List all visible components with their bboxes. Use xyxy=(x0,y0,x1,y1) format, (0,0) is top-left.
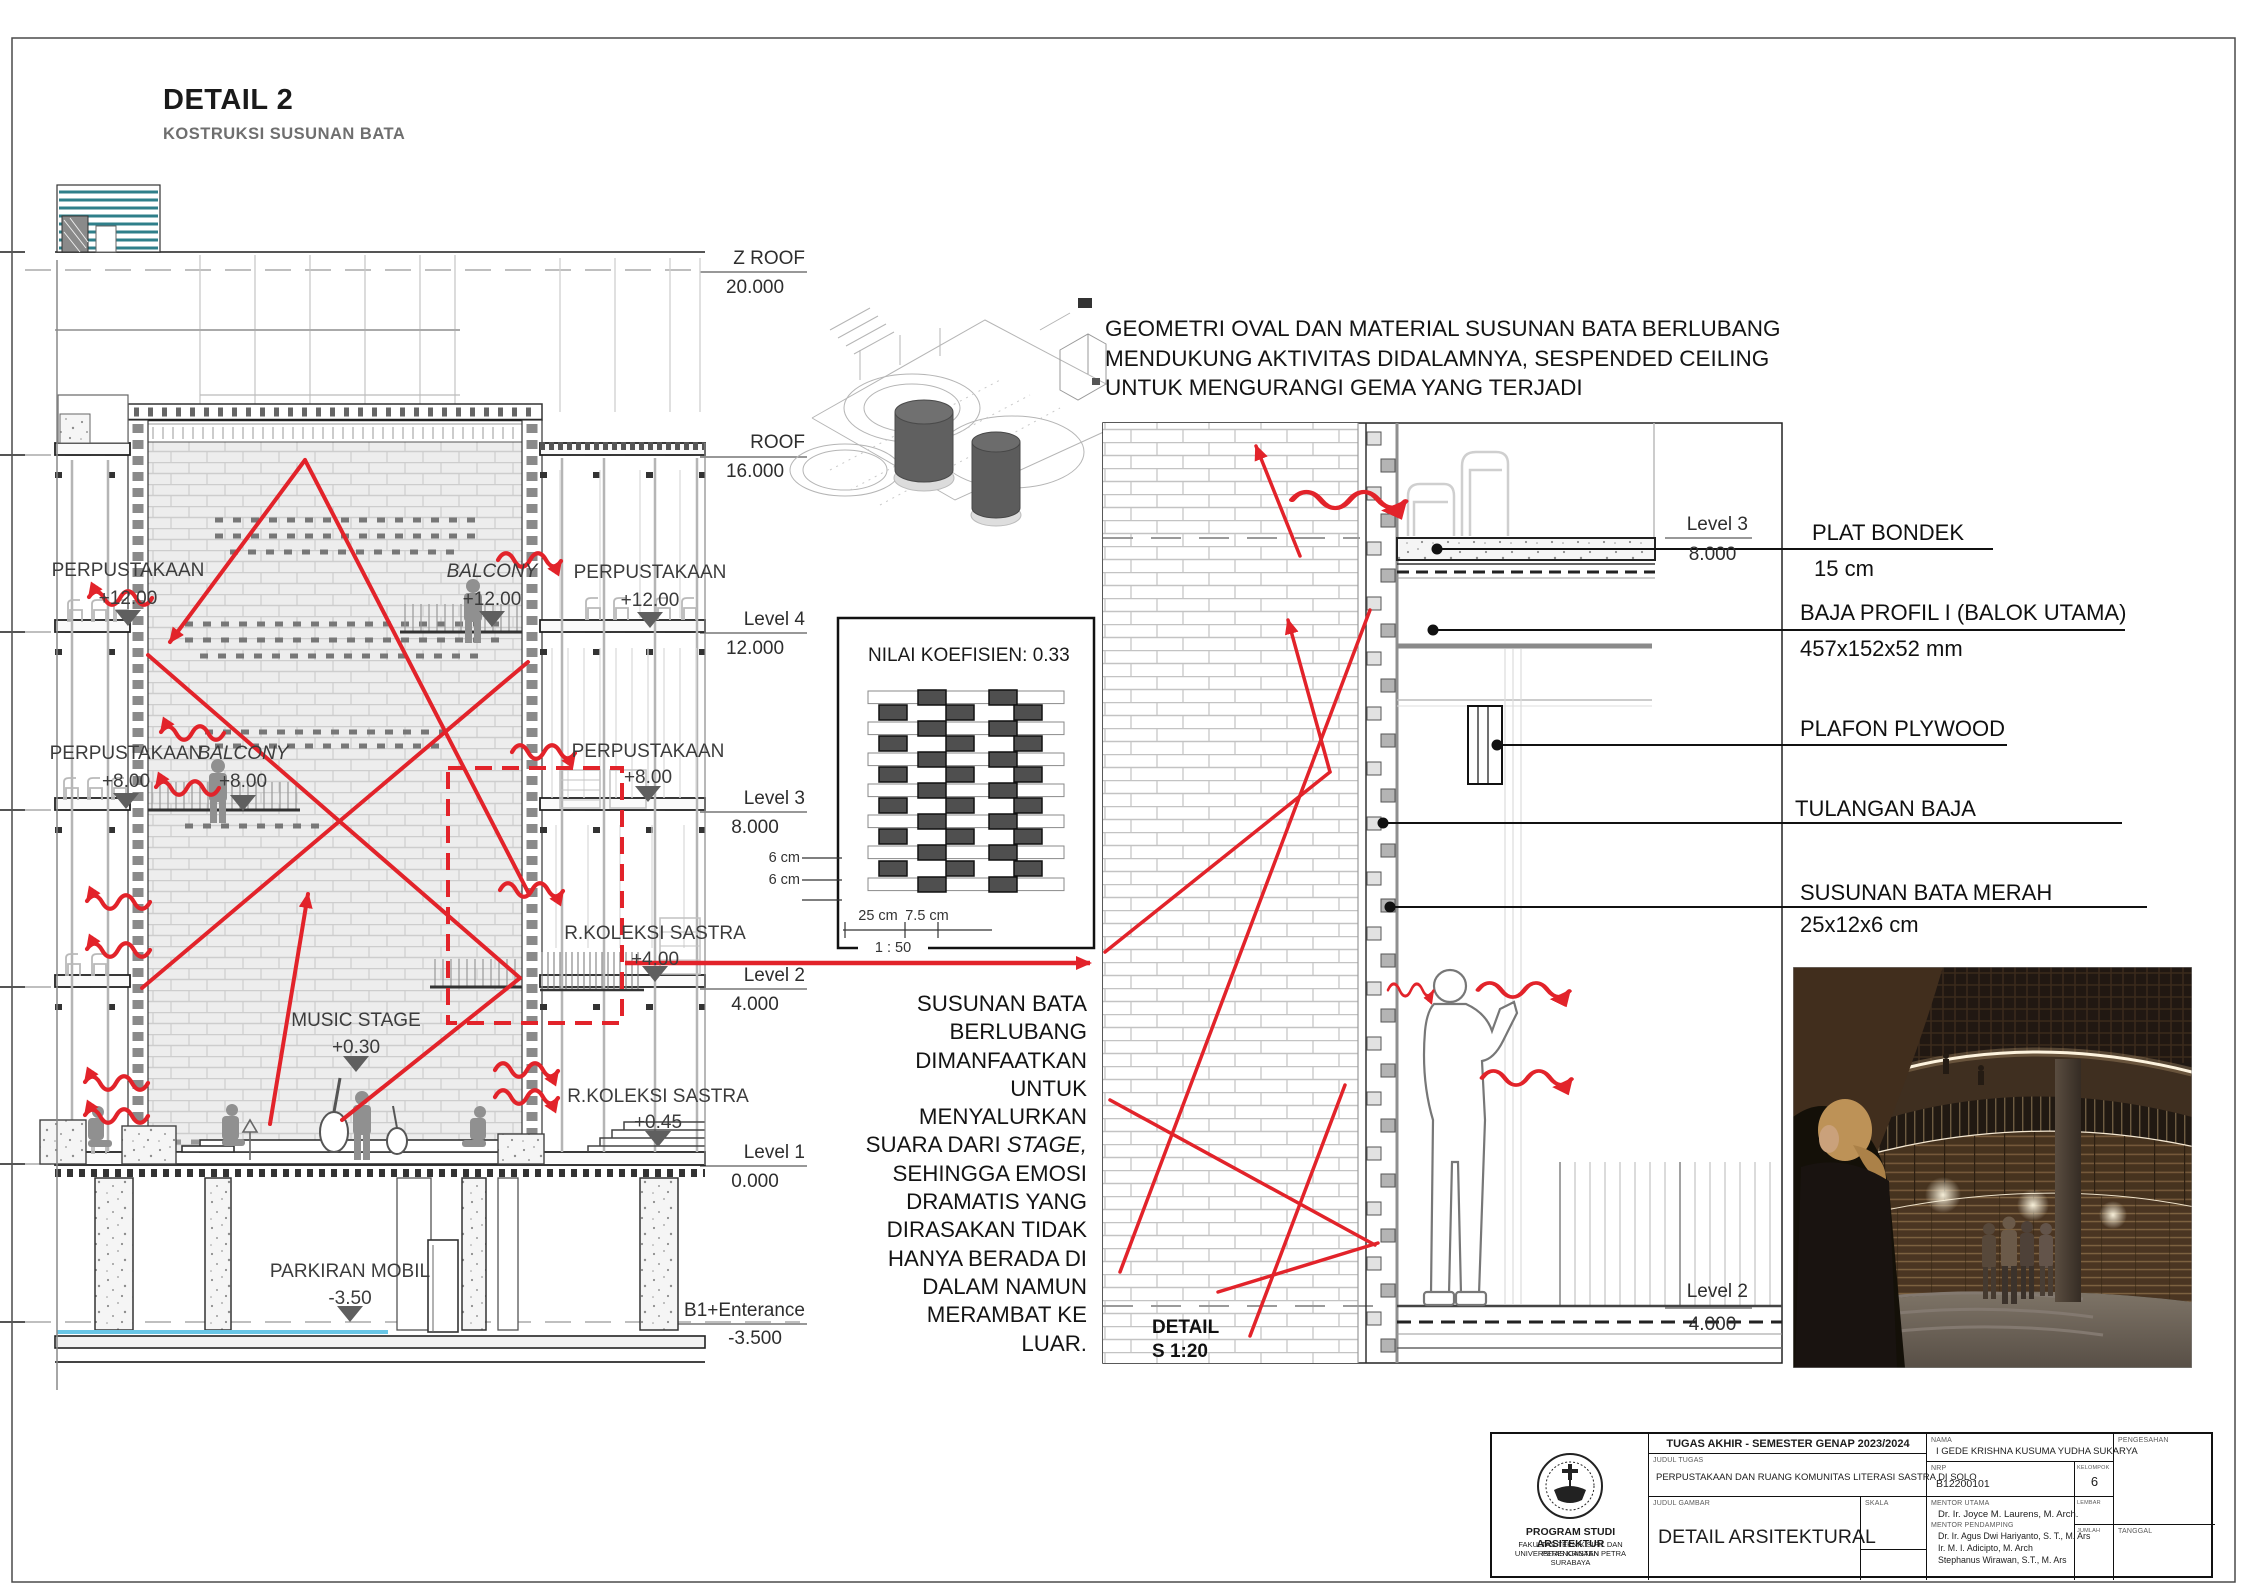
level-label: Level 1 xyxy=(615,1142,805,1164)
level-label: Level 3 xyxy=(615,788,805,810)
mentor-pendamping-3: Stephanus Wirawan, S.T., M. Ars xyxy=(1938,1555,2067,1565)
isometric-overview xyxy=(790,298,1108,526)
mentor-pendamping-2: Ir. M. I. Adicipto, M. Arch xyxy=(1938,1543,2033,1553)
sheet: { "sheet": {"title": "DETAIL 2", "subtit… xyxy=(0,0,2245,1587)
judul-tugas-label: JUDUL TUGAS xyxy=(1653,1457,1703,1464)
mentor-utama-value: Dr. Ir. Joyce M. Laurens, M. Arch. xyxy=(1938,1509,2078,1520)
level-elevation: 16.000 xyxy=(680,461,830,483)
annotation-line: GEOMETRI OVAL DAN MATERIAL SUSUNAN BATA … xyxy=(1105,314,1781,344)
city-name: SURABAYA xyxy=(1492,1558,1649,1567)
room-elevation: +8.00 xyxy=(66,771,186,793)
brick-coefficient-diagram xyxy=(802,618,1094,948)
assignment-header: TUGAS AKHIR - SEMESTER GENAP 2023/2024 xyxy=(1649,1438,1927,1450)
callout-label: PLAFON PLYWOOD xyxy=(1800,716,2005,742)
pengesahan-label: PENGESAHAN xyxy=(2118,1437,2169,1444)
annotation-line: UNTUK xyxy=(857,1075,1087,1103)
interior-render xyxy=(1793,967,2192,1368)
drawing-linework xyxy=(0,0,2245,1587)
dim-label: 25 cm xyxy=(853,908,903,924)
level-label: Level 3 xyxy=(1600,514,1748,536)
university-name: UNIVERSITAS KRISTEN PETRA xyxy=(1492,1549,1649,1558)
annotation-line: SUSUNAN BATA xyxy=(857,990,1087,1018)
level-label: B1+Enterance xyxy=(615,1300,805,1322)
mentor-utama-label: MENTOR UTAMA xyxy=(1931,1500,1990,1507)
university-logo-icon xyxy=(1536,1452,1604,1520)
room-label: PERPUSTAKAAN xyxy=(540,562,760,584)
annotation-line: SEHINGGA EMOSI xyxy=(857,1160,1087,1188)
lembar-label: LEMBAR xyxy=(2077,1500,2101,1506)
level-elevation: 0.000 xyxy=(680,1171,830,1193)
room-label: R.KOLEKSI SASTRA xyxy=(545,923,765,945)
detail-scale: S 1:20 xyxy=(1152,1340,1219,1364)
level-label: Level 4 xyxy=(615,609,805,631)
room-elevation: +0.45 xyxy=(598,1112,718,1134)
level-label: Z ROOF xyxy=(615,248,805,270)
level-elevation: 4.000 xyxy=(680,994,830,1016)
judul-gambar-value: DETAIL ARSITEKTURAL xyxy=(1658,1526,1876,1549)
kelompok-label: KELOMPOK xyxy=(2077,1465,2109,1471)
nama-value: I GEDE KRISHNA KUSUMA YUDHA SUKARYA xyxy=(1936,1446,2138,1457)
annotation-line: DALAM NAMUN xyxy=(857,1273,1087,1301)
title-block: PROGRAM STUDI ARSITEKTUR FAKULTAS TEKNIK… xyxy=(1490,1432,2213,1578)
skala-label: SKALA xyxy=(1865,1500,1889,1507)
room-label: PERPUSTAKAAN xyxy=(538,741,758,763)
room-label: BALCONY xyxy=(133,743,353,765)
nama-label: NAMA xyxy=(1931,1437,1952,1444)
callout-sub: 457x152x52 mm xyxy=(1800,636,1963,662)
level-elevation: 8.000 xyxy=(680,817,830,839)
annotation-line: MENDUKUNG AKTIVITAS DIDALAMNYA, SESPENDE… xyxy=(1105,344,1781,374)
level-elevation: 20.000 xyxy=(680,277,830,299)
detail-title: DETAIL S 1:20 xyxy=(1152,1316,1219,1364)
dim-label: 7.5 cm xyxy=(903,908,951,924)
room-elevation: +12.00 xyxy=(432,589,552,611)
room-elevation: +12.00 xyxy=(68,588,188,610)
mentor-pendamping-1: Dr. Ir. Agus Dwi Hariyanto, S. T., M. Ar… xyxy=(1938,1531,2090,1541)
jumlah-label: JUMLAH xyxy=(2077,1528,2100,1534)
room-elevation: +8.00 xyxy=(183,771,303,793)
level-label: ROOF xyxy=(615,432,805,454)
callout-sub: 15 cm xyxy=(1814,556,1874,582)
annotation-line: MERAMBAT KE xyxy=(857,1301,1087,1329)
dim-label: 6 cm xyxy=(740,850,800,866)
room-elevation: +8.00 xyxy=(588,767,708,789)
room-label: MUSIC STAGE xyxy=(246,1010,466,1032)
room-label: PERPUSTAKAAN xyxy=(18,560,238,582)
annotation-line: DIMANFAATKAN xyxy=(857,1047,1087,1075)
kelompok-value: 6 xyxy=(2075,1474,2114,1489)
skala-divider xyxy=(1861,1549,1927,1550)
page-subtitle: KOSTRUKSI SUSUNAN BATA xyxy=(163,125,405,144)
callout-label: PLAT BONDEK xyxy=(1812,520,1964,546)
scale-label: 1 : 50 xyxy=(858,940,928,956)
annotation-line: HANYA BERADA DI xyxy=(857,1245,1087,1273)
nrp-value: B12200101 xyxy=(1936,1478,1990,1490)
room-elevation: +4.00 xyxy=(595,949,715,971)
page-title: DETAIL 2 xyxy=(163,84,293,117)
annotation-line: BERLUBANG xyxy=(857,1018,1087,1046)
dim-label: 6 cm xyxy=(740,872,800,888)
callout-label: SUSUNAN BATA MERAH xyxy=(1800,880,2052,906)
judul-gambar-label: JUDUL GAMBAR xyxy=(1653,1500,1710,1507)
stage-word: STAGE, xyxy=(1007,1132,1087,1157)
level-elevation: -3.500 xyxy=(680,1328,830,1350)
room-elevation: +0.30 xyxy=(296,1037,416,1059)
annotation-line: MENYALURKAN xyxy=(857,1103,1087,1131)
annotation-line: DIRASAKAN TIDAK xyxy=(857,1216,1087,1244)
annotation-side: SUSUNAN BATA BERLUBANG DIMANFAATKAN UNTU… xyxy=(857,990,1087,1358)
nrp-label: NRP xyxy=(1931,1465,1946,1472)
level-elevation: 8.000 xyxy=(1640,544,1785,566)
room-elevation: +12.00 xyxy=(590,590,710,612)
tanggal-label: TANGGAL xyxy=(2118,1528,2152,1535)
koefisien-title: NILAI KOEFISIEN: 0.33 xyxy=(868,645,1070,667)
annotation-top: GEOMETRI OVAL DAN MATERIAL SUSUNAN BATA … xyxy=(1105,314,1781,403)
level-elevation: 12.000 xyxy=(680,638,830,660)
room-label: R.KOLEKSI SASTRA xyxy=(548,1086,768,1108)
annotation-line: SUARA DARI STAGE, xyxy=(857,1131,1087,1159)
callout-label: TULANGAN BAJA xyxy=(1795,796,1976,822)
annotation-line: DRAMATIS YANG xyxy=(857,1188,1087,1216)
detail-title-text: DETAIL xyxy=(1152,1316,1219,1340)
annotation-line: UNTUK MENGURANGI GEMA YANG TERJADI xyxy=(1105,373,1781,403)
room-elevation: -3.50 xyxy=(290,1288,410,1310)
callout-sub: 25x12x6 cm xyxy=(1800,912,1919,938)
annotation-line: LUAR. xyxy=(857,1330,1087,1358)
room-label: PARKIRAN MOBIL xyxy=(240,1261,460,1283)
mentor-pendamping-label: MENTOR PENDAMPING xyxy=(1931,1522,2014,1529)
callout-label: BAJA PROFIL I (BALOK UTAMA) xyxy=(1800,600,2126,626)
level-label: Level 2 xyxy=(1600,1281,1748,1303)
level-elevation: 4.000 xyxy=(1640,1314,1785,1336)
judul-tugas-value: PERPUSTAKAAN DAN RUANG KOMUNITAS LITERAS… xyxy=(1656,1472,1977,1483)
